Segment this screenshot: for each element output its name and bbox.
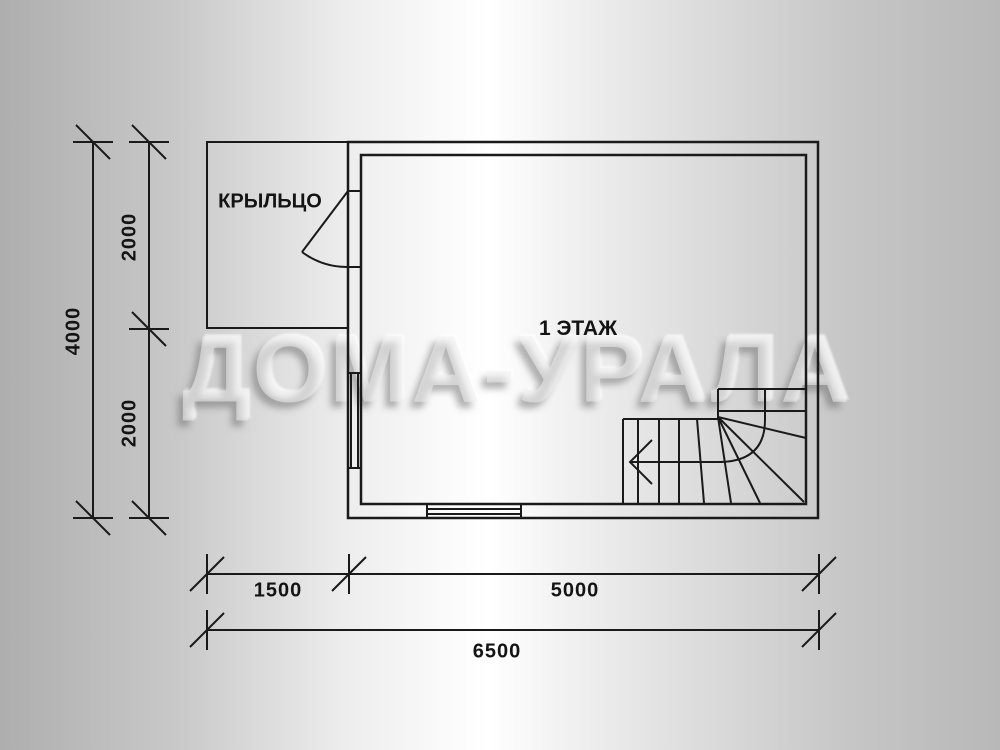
dim-horizontal-porch: 1500 (254, 580, 303, 603)
dim-horizontal-total: 6500 (473, 641, 522, 664)
staircase (623, 389, 806, 503)
dim-vertical-total: 4000 (63, 307, 86, 356)
dim-vertical-lower: 2000 (119, 399, 142, 448)
floor-plan-drawing (0, 0, 1000, 750)
dim-vertical-upper: 2000 (119, 213, 142, 262)
porch-outline (207, 142, 348, 328)
floor-label: 1 ЭТАЖ (539, 317, 617, 341)
dim-horizontal-house: 5000 (551, 580, 600, 603)
dimension-lines-left (73, 125, 169, 535)
floor-plan-canvas: ДОМА-УРАЛА (0, 0, 1000, 750)
window-left (348, 373, 361, 468)
porch-label: КРЫЛЬЦО (218, 191, 322, 214)
window-bottom (427, 505, 521, 518)
